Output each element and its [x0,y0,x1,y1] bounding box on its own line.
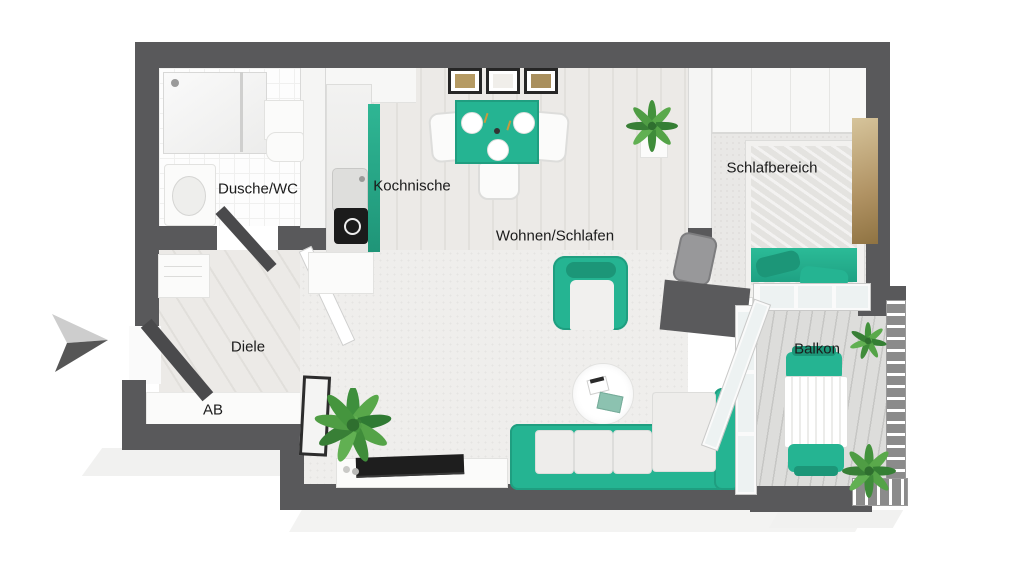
shower-glass-panel [240,72,243,152]
wall-ab-bottom [122,424,304,450]
picture-art [493,74,513,88]
room-label-diele: Diele [231,339,265,356]
dining-chair-bottom [478,162,520,200]
balcony-table [784,376,848,448]
wardrobe [712,68,866,134]
picture-art [455,74,475,88]
hall-dresser [158,254,210,298]
sofa-cushion [613,430,652,474]
picture-art [531,74,551,88]
wall-picture-middle [486,68,520,94]
sofa-cushion [535,430,574,474]
slab-bevel-ab [82,448,308,476]
floor-plant-icon [314,388,392,462]
wall-picture-right [524,68,558,94]
potted-plant-icon [626,100,678,152]
dining-centerpiece [494,128,500,134]
room-label-wohnen-schlafen: Wohnen/Schlafen [496,228,614,245]
floorplan-scene: Dusche/WC Kochnische Wohnen/Schlafen Sch… [0,0,1024,576]
washbasin-sink [172,176,206,216]
sofa-cushion [574,430,613,474]
wall-picture-left [448,68,482,94]
room-label-ab: AB [203,402,223,419]
storage-ab-niche [146,392,302,426]
room-label-schlafbereich: Schlafbereich [727,160,818,177]
slab-bevel-balcony [769,510,903,528]
hall-dresser-drawer-lines [164,266,202,267]
bedroom-wall-art [852,118,878,244]
room-label-kochnische: Kochnische [373,178,451,195]
wall-bath-bottom-right [278,226,326,250]
entrance-arrow-icon [50,312,110,376]
wall-top [135,42,890,68]
kitchen-sink [332,168,368,212]
wall-left-upper [135,42,159,326]
dining-plate [461,112,483,134]
armchair-cushion [570,280,614,330]
toilet [266,132,304,162]
armchair-backrest [566,262,616,278]
dining-plate [487,139,509,161]
dining-plate [513,112,535,134]
wall-partition-bedroom [688,68,712,230]
wall-bath-bottom-left [135,226,217,250]
kitchen-base-cabinet [308,252,374,294]
balcony-plant-top-icon [846,320,890,362]
room-label-dusche-wc: Dusche/WC [218,181,298,198]
kitchen-faucet-icon [359,176,365,182]
shower-head-icon [171,79,179,87]
balcony-window-top [754,284,870,310]
cooktop-burner-icon [344,218,361,235]
balcony-chair-bottom-backrest [794,466,838,476]
room-label-balkon: Balkon [794,341,840,358]
balcony-plant-bottom-icon [840,444,898,498]
decor-vases-icon [343,466,350,473]
